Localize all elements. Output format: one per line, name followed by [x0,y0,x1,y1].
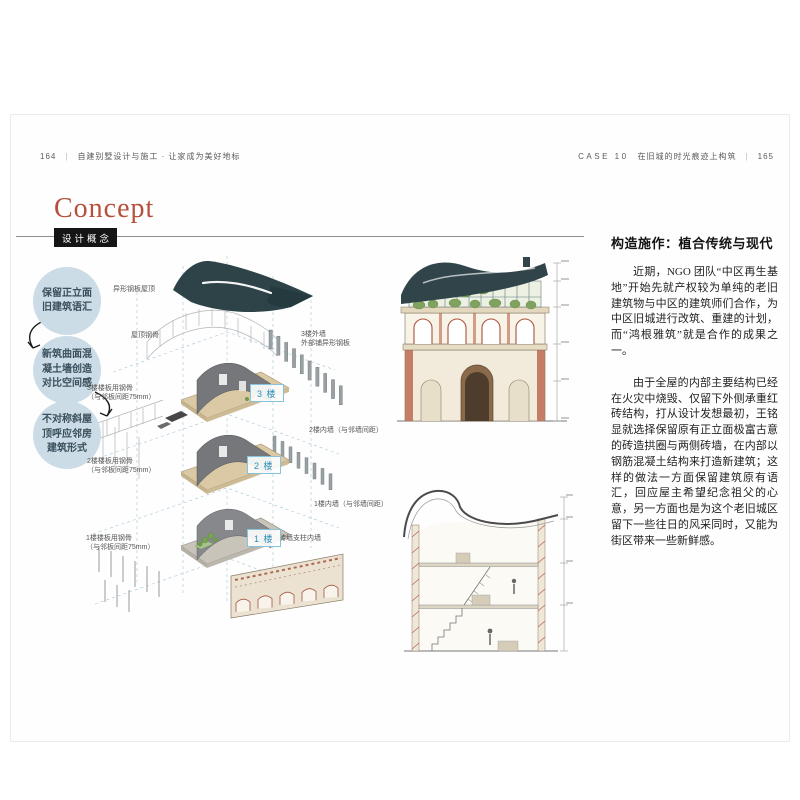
label-slab-3f: 3楼楼板用钢骨 （与邻板间距75mm） [87,385,155,402]
header-right: CASE 10 在旧城的时光痕迹上构筑 | 165 [578,151,774,162]
floor-badge-1f: 1 楼 [247,529,281,547]
article-title: 构造施作：植合传统与现代 [611,233,778,252]
label-slab-1f: 1楼楼板用钢骨 （与邻板间距75mm） [86,535,154,552]
front-elevation-drawing [395,253,573,428]
header-divider: | [65,152,68,161]
section-title: Concept [54,193,154,225]
page-number-right: 165 [758,152,774,161]
cut-wall-right [538,519,545,651]
article-column: 构造施作：植合传统与现代 近期，NGO 团队“中区再生基地”开始先就产权较为单纯… [611,233,778,566]
book-title: 自建别墅设计与施工 · 让家成为美好地标 [77,151,240,162]
cut-wall-left [412,525,419,651]
concept-bubble-1: 保留正立面旧建筑语汇 [33,267,101,335]
label-wall-3f: 3楼外墙 外部铺异形钢板 [301,331,350,348]
header-left: 164 | 自建别墅设计与施工 · 让家成为美好地标 [40,151,241,162]
label-slab-2f: 2楼楼板用钢骨 （与邻板间距75mm） [87,458,155,475]
old-brick-facade [231,554,343,618]
floor-badge-2f: 2 楼 [247,456,281,474]
label-wall-2f: 2楼内墙（与邻墙间距） [309,427,383,436]
exploded-axonometric-diagram [85,250,347,622]
section-badge: 设计概念 [54,228,117,247]
roof-steel-frame [147,309,277,359]
label-wall-1f: 1楼内墙（与邻墙间距） [314,501,388,510]
article-paragraph: 近期，NGO 团队“中区再生基地”开始先就产权较为单纯的老旧建筑物与中区的建筑师… [611,265,778,360]
roof-plate [173,261,313,312]
foundation-columns [99,546,159,612]
case-label: CASE 10 [578,152,628,161]
chapter-title: 在旧城的时光痕迹上构筑 [638,151,737,162]
section-drawing [398,473,574,665]
header-divider: | [746,152,749,161]
label-roof-frame: 屋顶钢骨 [131,332,159,341]
dimension-line [560,497,568,651]
article-paragraph: 由于全屋的内部主要结构已经在火灾中烧毁、仅留下外侧承重红砖结构，打从设计发想最初… [611,376,778,550]
label-roof-plate: 异形钢板屋顶 [113,286,155,295]
page-number-left: 164 [40,152,56,161]
floor-badge-3f: 3 楼 [250,384,284,402]
label-brick-wall: 砖墙支柱内墙 [279,535,321,544]
book-spread-photo: 164 | 自建别墅设计与施工 · 让家成为美好地标 CASE 10 在旧城的时… [0,0,800,800]
dimension-line [553,263,561,421]
